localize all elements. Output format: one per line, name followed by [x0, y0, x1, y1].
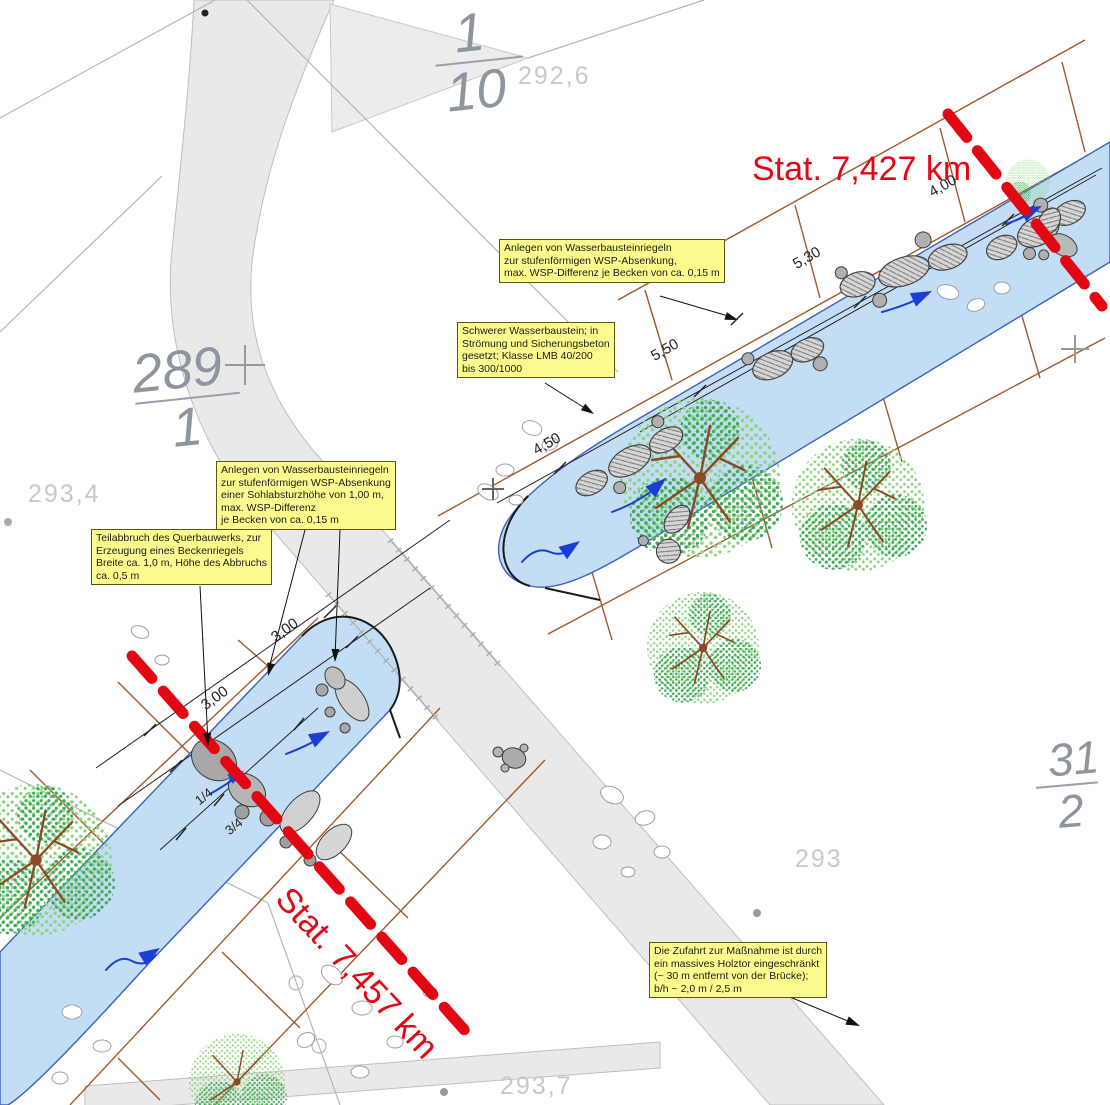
annotation-line: bis 300/1000: [462, 363, 610, 376]
elevation-label: 293,4: [28, 480, 101, 509]
parcel-label-289-1: 289 1: [130, 341, 245, 455]
annotation-line: Erzeugung eines Beckenriegels: [96, 545, 267, 558]
annotation-line: zur stufenförmigen WSP-Absenkung,: [504, 255, 720, 268]
annotation-line: Teilabbruch des Querbauwerks, zur: [96, 532, 267, 545]
tree-symbol: [0, 784, 115, 936]
elevation-label: 293: [795, 845, 843, 874]
station-label-7427: Stat. 7,427 km: [752, 150, 971, 189]
annotation-line: ein massives Holztor eingeschränkt: [654, 958, 822, 971]
annotation-line: einer Sohlabsturzhöhe von 1,00 m,: [221, 489, 391, 502]
annotation-teilabbruch: Teilabbruch des Querbauwerks, zur Erzeug…: [91, 529, 272, 585]
annotation-line: ca. 0,5 m: [96, 570, 267, 583]
annotation-line: gesetzt; Klasse LMB 40/200: [462, 350, 610, 363]
annotation-wasserbaustein: Schwerer Wasserbaustein; in Strömung und…: [457, 322, 615, 378]
parcel-denominator: 1: [170, 399, 245, 452]
annotation-line: je Becken von ca. 0,15 m: [221, 514, 391, 527]
parcel-label-31-2: 31 2: [1032, 736, 1105, 833]
annotation-line: b/h ~ 2,0 m / 2,5 m: [654, 983, 822, 996]
tree-symbol: [647, 592, 761, 704]
parcel-numerator: 289: [130, 341, 239, 398]
parcel-numerator: 1: [452, 5, 522, 58]
parcel-label-1-10: 1 10: [430, 5, 528, 118]
elevation-label: 292,6: [518, 62, 591, 91]
annotation-line: Schwerer Wasserbaustein; in: [462, 325, 610, 338]
annotation-riegel-upper: Anlegen von Wasserbausteinriegeln zur st…: [499, 239, 725, 283]
annotation-zufahrt: Die Zufahrt zur Maßnahme ist durch ein m…: [649, 942, 827, 998]
annotation-riegel-lower: Anlegen von Wasserbausteinriegeln zur st…: [216, 461, 396, 530]
site-plan-canvas: Anlegen von Wasserbausteinriegeln zur st…: [0, 0, 1110, 1105]
annotation-line: max. WSP-Differenz je Becken von ca. 0,1…: [504, 267, 720, 280]
annotation-line: max. WSP-Differenz: [221, 502, 391, 515]
road-bottom-strip: [85, 1042, 660, 1105]
annotation-line: Die Zufahrt zur Maßnahme ist durch: [654, 945, 822, 958]
parcel-denominator: 2: [1056, 788, 1104, 832]
annotation-line: Breite ca. 1,0 m, Höhe des Abbruchs: [96, 557, 267, 570]
annotation-line: (~ 30 m entfernt von der Brücke);: [654, 970, 822, 983]
annotation-line: Strömung und Sicherungsbeton: [462, 338, 610, 351]
annotation-line: zur stufenförmigen WSP-Absenkung: [221, 477, 391, 490]
tree-symbol: [792, 439, 927, 572]
parcel-denominator: 10: [444, 62, 528, 116]
elevation-label: 293,7: [500, 1072, 573, 1101]
annotation-line: Anlegen von Wasserbausteinriegeln: [504, 242, 720, 255]
parcel-numerator: 31: [1046, 736, 1100, 780]
annotation-line: Anlegen von Wasserbausteinriegeln: [221, 464, 391, 477]
